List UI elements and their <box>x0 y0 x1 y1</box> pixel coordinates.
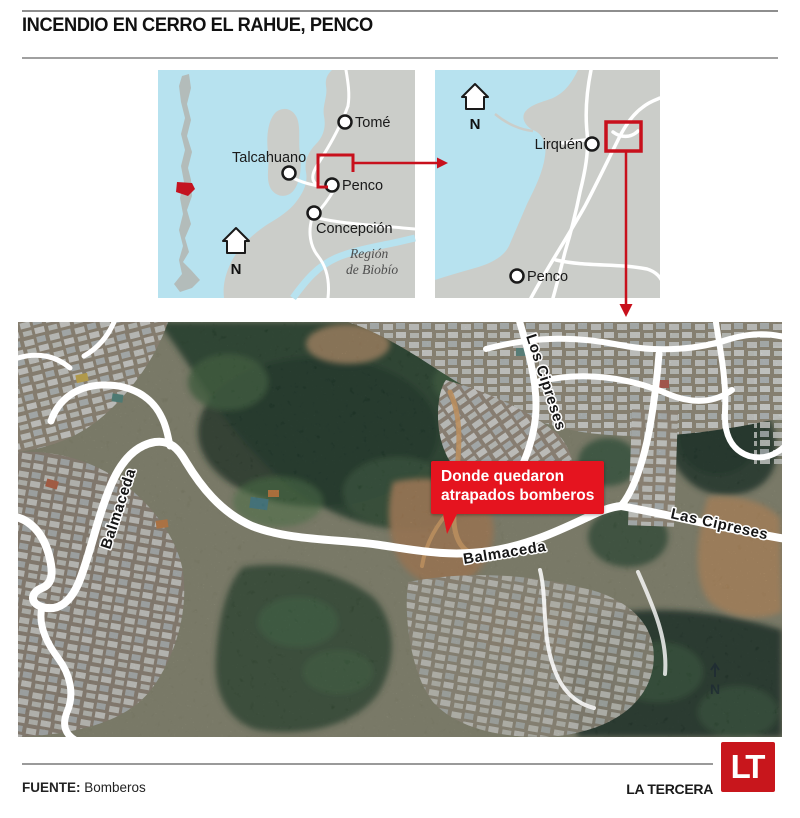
talcahuano-label: Talcahuano <box>232 150 306 166</box>
overview-north-label: N <box>231 261 242 278</box>
talcahuano-marker <box>283 167 296 180</box>
source-note: FUENTE: Bomberos <box>22 780 146 795</box>
tome-marker <box>339 116 352 129</box>
page-title: INCENDIO EN CERRO EL RAHUE, PENCO <box>22 15 373 37</box>
top-rule <box>22 10 778 12</box>
satellite-north-label: N <box>710 681 720 697</box>
penco-label: Penco <box>342 178 383 194</box>
overview-map: N Tomé Talcahuano Penco Concepción Regió… <box>158 70 415 298</box>
source-label: FUENTE: <box>22 780 81 795</box>
concepcion-marker <box>308 207 321 220</box>
lt-logo: LT <box>721 742 775 792</box>
locator-maps: N Tomé Talcahuano Penco Concepción Regió… <box>0 58 800 322</box>
region-label-2: de Biobío <box>346 262 398 277</box>
satellite-north-watermark: N <box>710 664 720 697</box>
detail-map: N Lirquén Penco <box>435 70 664 298</box>
callout-line-1: Donde quedaron <box>441 468 594 487</box>
grain-dark <box>18 322 782 737</box>
callout-firefighters: Donde quedaron atrapados bomberos <box>431 461 604 514</box>
footer-divider <box>22 763 713 765</box>
penco-marker <box>326 179 339 192</box>
detail-north-label: N <box>470 116 481 133</box>
satellite-map: Los Cipreses Las Cipreses Balmaceda Balm… <box>18 322 782 737</box>
detail-penco-marker <box>511 270 524 283</box>
lirquen-marker <box>586 138 599 151</box>
brand-name: LA TERCERA <box>626 781 713 797</box>
infographic-page: INCENDIO EN CERRO EL RAHUE, PENCO <box>0 0 800 818</box>
region-label-1: Región <box>349 246 388 261</box>
tome-label: Tomé <box>355 115 390 131</box>
callout-line-2: atrapados bomberos <box>441 487 594 506</box>
zoom-arrow-head <box>620 304 633 317</box>
source-value: Bomberos <box>84 780 146 795</box>
concepcion-label: Concepción <box>316 221 393 237</box>
satellite-image: Los Cipreses Las Cipreses Balmaceda Balm… <box>18 322 782 737</box>
lt-logo-text: LT <box>731 748 766 786</box>
lirquen-label: Lirquén <box>535 137 583 153</box>
callout-pointer <box>443 514 457 534</box>
detail-penco-label: Penco <box>527 269 568 285</box>
